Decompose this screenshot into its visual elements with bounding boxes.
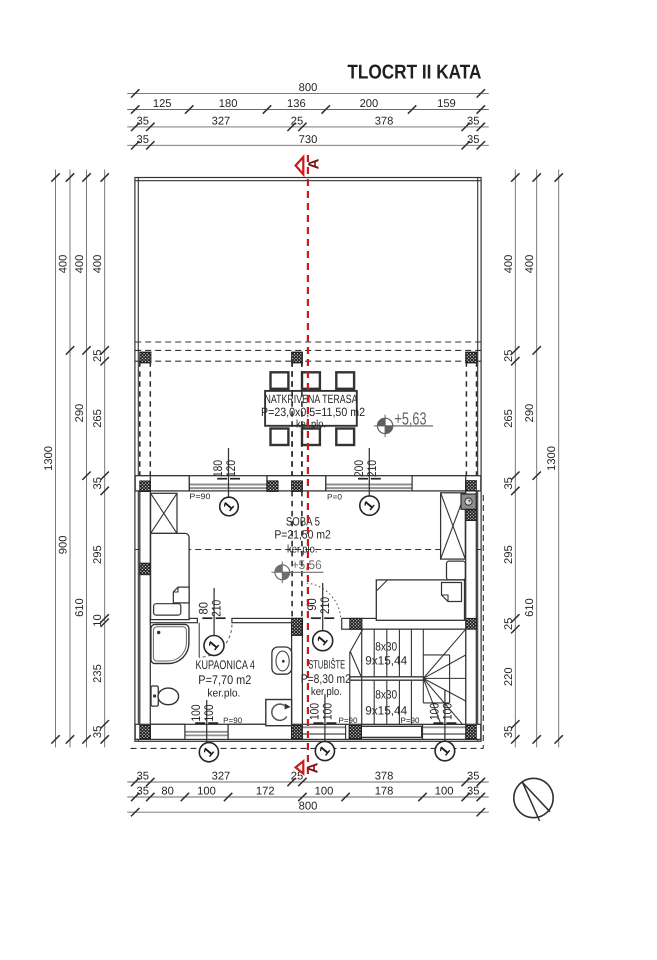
svg-text:35: 35 [503, 726, 515, 738]
svg-text:35: 35 [467, 115, 479, 127]
svg-text:730: 730 [299, 134, 318, 146]
svg-text:35: 35 [137, 771, 149, 783]
svg-text:400: 400 [58, 255, 70, 274]
svg-text:610: 610 [524, 598, 536, 617]
svg-text:80: 80 [196, 602, 210, 615]
svg-text:200: 200 [360, 98, 379, 110]
svg-text:P=0: P=0 [327, 493, 343, 502]
svg-text:100: 100 [197, 786, 216, 798]
svg-text:327: 327 [212, 115, 231, 127]
svg-text:378: 378 [375, 115, 394, 127]
svg-text:35: 35 [92, 726, 104, 738]
svg-text:P=90: P=90 [339, 716, 359, 725]
svg-text:172: 172 [256, 786, 275, 798]
svg-text:100: 100 [307, 703, 321, 720]
svg-text:ker.plo.: ker.plo. [207, 688, 240, 700]
svg-text:P=21,50 m2: P=21,50 m2 [274, 527, 331, 541]
svg-text:P=23,0x0,5=11,50 m2: P=23,0x0,5=11,50 m2 [261, 405, 365, 419]
svg-text:100: 100 [440, 703, 454, 720]
svg-text:235: 235 [92, 664, 104, 683]
svg-text:210: 210 [210, 600, 224, 617]
svg-text:+5,56: +5,56 [292, 558, 322, 572]
svg-text:210: 210 [318, 597, 332, 614]
svg-text:327: 327 [212, 771, 231, 783]
svg-text:P=90: P=90 [223, 716, 243, 725]
svg-text:125: 125 [153, 98, 172, 110]
svg-text:35: 35 [467, 134, 479, 146]
svg-text:25: 25 [503, 350, 515, 362]
svg-text:180: 180 [219, 98, 238, 110]
svg-text:9x15,44: 9x15,44 [365, 703, 407, 717]
svg-text:900: 900 [58, 536, 70, 555]
svg-text:10: 10 [92, 614, 104, 626]
svg-text:295: 295 [503, 545, 515, 564]
svg-text:265: 265 [503, 409, 515, 428]
svg-text:A: A [305, 158, 322, 169]
svg-text:+5,63: +5,63 [395, 409, 427, 429]
svg-text:400: 400 [92, 255, 104, 274]
svg-text:P=90: P=90 [189, 492, 211, 501]
svg-text:KUPAONICA 4: KUPAONICA 4 [195, 658, 255, 672]
svg-text:8x30: 8x30 [375, 639, 397, 653]
svg-text:800: 800 [299, 82, 318, 94]
svg-text:100: 100 [189, 704, 203, 721]
svg-text:25: 25 [291, 115, 303, 127]
svg-text:159: 159 [437, 98, 456, 110]
svg-text:9x15,44: 9x15,44 [365, 654, 407, 668]
svg-text:25: 25 [503, 618, 515, 630]
svg-text:ker.plo.: ker.plo. [296, 418, 326, 430]
svg-text:35: 35 [137, 134, 149, 146]
svg-text:8x30: 8x30 [375, 687, 397, 701]
svg-text:ker.plo.: ker.plo. [287, 544, 318, 556]
svg-text:A: A [304, 762, 321, 773]
svg-text:35: 35 [137, 115, 149, 127]
svg-text:100: 100 [202, 704, 216, 721]
svg-text:1300: 1300 [43, 446, 55, 471]
svg-text:NATKRIVENA TERASA: NATKRIVENA TERASA [265, 392, 358, 406]
svg-text:100: 100 [435, 786, 454, 798]
svg-text:1300: 1300 [546, 446, 558, 471]
svg-text:290: 290 [524, 404, 536, 423]
svg-text:80: 80 [161, 786, 173, 798]
svg-text:TLOCRT II KATA: TLOCRT II KATA [347, 62, 481, 84]
svg-text:35: 35 [137, 786, 149, 798]
svg-text:25: 25 [92, 350, 104, 362]
svg-text:35: 35 [92, 477, 104, 489]
svg-text:100: 100 [427, 703, 441, 720]
svg-text:ker.plo.: ker.plo. [311, 686, 342, 698]
svg-text:35: 35 [467, 771, 479, 783]
svg-text:400: 400 [524, 255, 536, 274]
svg-text:290: 290 [74, 404, 86, 423]
svg-text:136: 136 [287, 98, 306, 110]
svg-text:35: 35 [467, 786, 479, 798]
svg-text:P=7,70 m2: P=7,70 m2 [198, 673, 251, 687]
svg-text:120: 120 [224, 460, 238, 477]
svg-text:220: 220 [503, 667, 515, 686]
svg-text:100: 100 [320, 703, 334, 720]
svg-text:STUBIŠTE: STUBIŠTE [308, 657, 345, 671]
svg-text:800: 800 [299, 801, 318, 813]
svg-text:378: 378 [375, 771, 394, 783]
svg-text:610: 610 [74, 598, 86, 617]
svg-text:P=90: P=90 [401, 716, 421, 725]
svg-text:100: 100 [315, 786, 334, 798]
svg-text:210: 210 [365, 460, 379, 477]
svg-text:35: 35 [503, 477, 515, 489]
svg-text:295: 295 [92, 545, 104, 564]
svg-text:265: 265 [92, 409, 104, 428]
svg-text:400: 400 [503, 255, 515, 274]
svg-text:178: 178 [375, 786, 394, 798]
svg-text:400: 400 [74, 255, 86, 274]
